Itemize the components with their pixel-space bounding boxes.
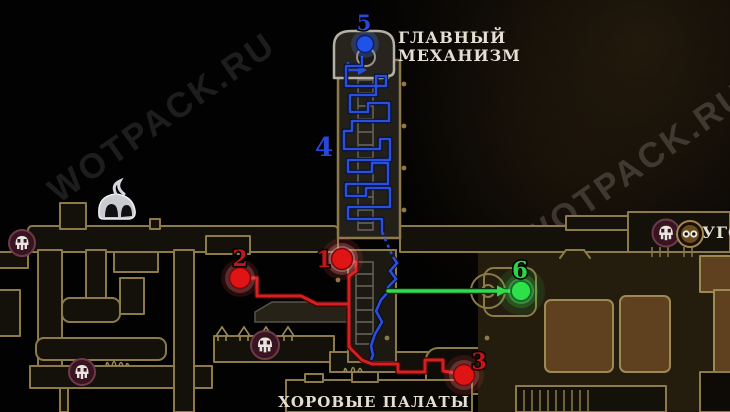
svg-text:МЕХАНИЗМ: МЕХАНИЗМ [398,46,521,65]
game-map-screenshot: WOTPACK.RU WOTPACK.RU [0,0,730,412]
marker-1-label: 1 [316,247,331,273]
cog-face-icon [677,221,703,247]
marker-2-label: 2 [232,246,247,272]
bell-station-icon [99,181,135,219]
mask-icon [69,359,95,385]
marker-4-label[interactable]: 4 [315,133,333,163]
area-label-main-mechanism: ГЛАВНЫЙ МЕХАНИЗМ [398,26,521,65]
marker-6-label: 6 [512,257,528,284]
marker-3-label: 3 [471,349,486,375]
area-label-right-partial: УГО [702,223,730,242]
svg-text:ГЛАВНЫЙ: ГЛАВНЫЙ [398,26,506,47]
mask-icon [9,230,35,256]
area-label-choral-chambers: ХОРОВЫЕ ПАЛАТЫ [278,393,469,411]
mask-icon [653,220,680,247]
map-canvas: 1 2 3 4 5 6 ГЛАВНЫЙ [0,0,730,412]
marker-5-label: 5 [357,10,372,35]
mask-icon [251,331,279,359]
